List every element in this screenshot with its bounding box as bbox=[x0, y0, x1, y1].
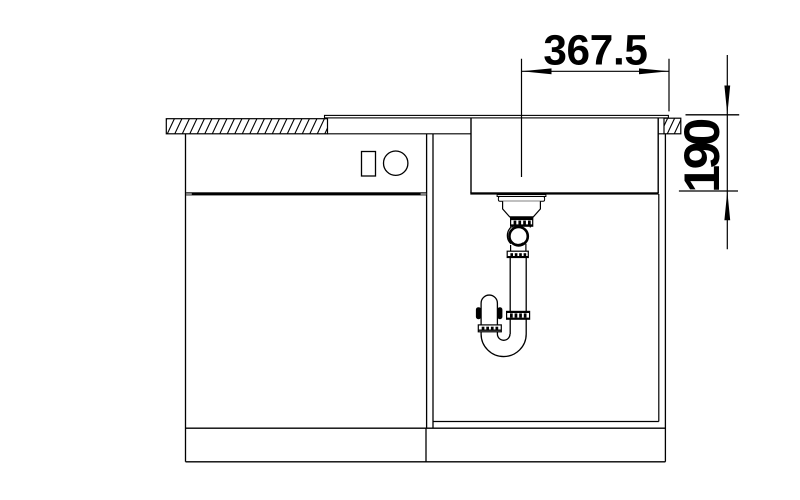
svg-text:190: 190 bbox=[673, 119, 730, 193]
svg-text:367.5: 367.5 bbox=[543, 26, 647, 73]
